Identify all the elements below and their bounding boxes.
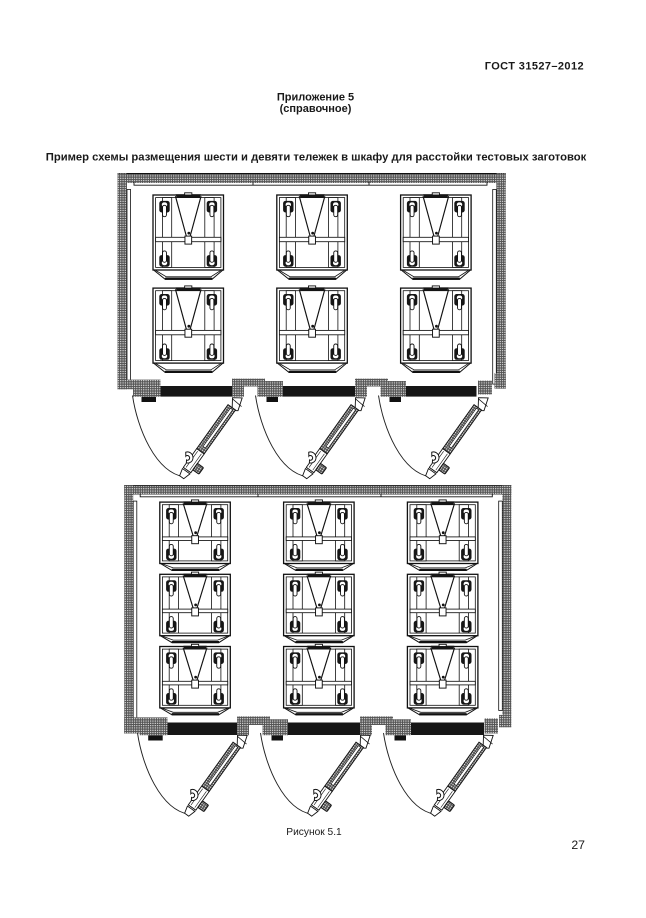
svg-text:Рисунок 5.1: Рисунок 5.1: [286, 827, 342, 838]
svg-text:(справочное): (справочное): [280, 103, 352, 115]
svg-text:Приложение 5: Приложение 5: [277, 92, 354, 104]
svg-text:27: 27: [571, 838, 585, 852]
svg-text:ГОСТ 31527–2012: ГОСТ 31527–2012: [485, 61, 584, 73]
svg-text:Пример схемы размещения шести: Пример схемы размещения шести и девяти т…: [46, 152, 587, 164]
